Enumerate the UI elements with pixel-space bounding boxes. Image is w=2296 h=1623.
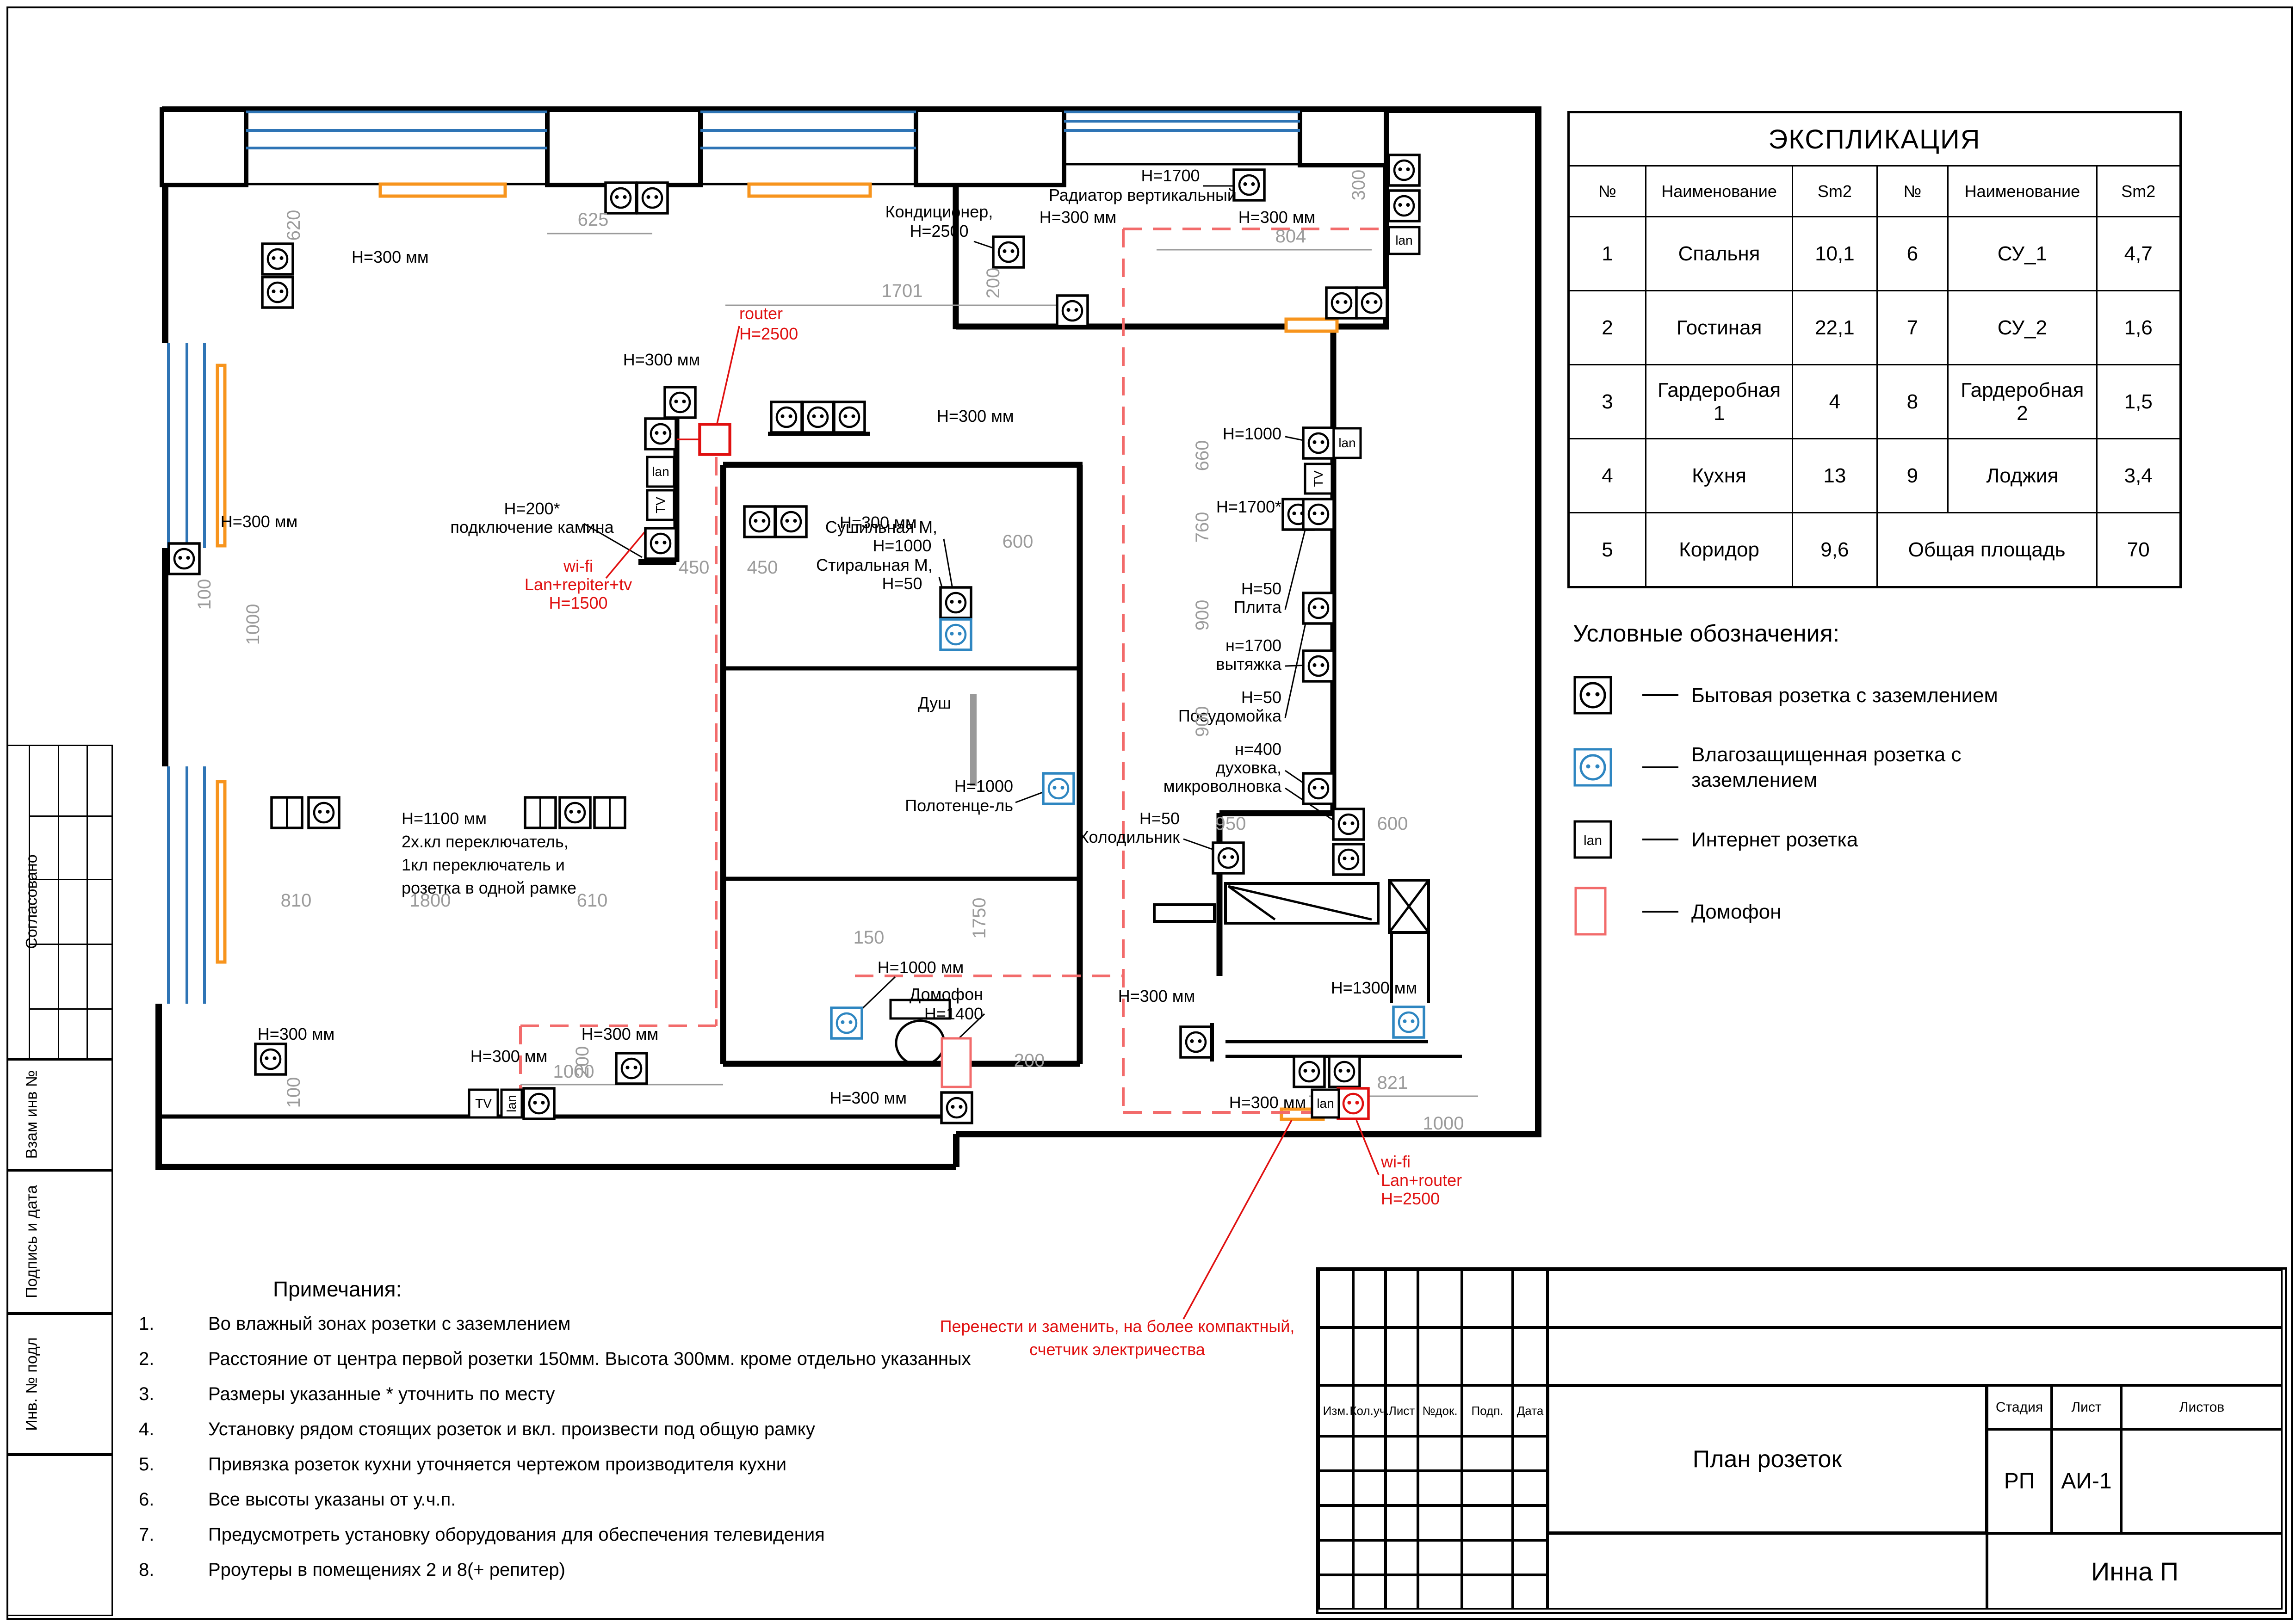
author: Инна П: [1987, 1533, 2283, 1610]
note-text: Рроутеры в помещениях 2 и 8(+ репитер): [208, 1560, 565, 1580]
dimension-label: 200: [983, 268, 1003, 299]
legend-dash: [1642, 839, 1678, 840]
power-socket: [1389, 191, 1419, 221]
note-number: 2.: [139, 1349, 208, 1370]
stamp-label: Взам инв №: [23, 1050, 41, 1179]
wall-pier: [162, 110, 246, 185]
dimension-label: 150: [854, 927, 885, 948]
note-item: 3.Размеры указанные * уточнить по месту: [139, 1384, 1342, 1405]
power-socket: [1057, 296, 1088, 326]
explication-cell: Гардеробная 2: [1948, 365, 2097, 439]
power-socket: [1294, 1056, 1324, 1087]
power-socket: [1333, 809, 1364, 839]
radiator-mark: [380, 184, 505, 196]
plan-label: Н=50: [882, 574, 922, 593]
title-block-cell: [1462, 1436, 1513, 1471]
router-box: [700, 425, 730, 454]
title-block-cell: [1318, 1327, 1353, 1385]
power-socket: [637, 183, 668, 213]
plan-label: H=300 мм: [258, 1024, 335, 1043]
plan-label: Н=1400: [924, 1004, 983, 1023]
legend-item: Влагозащищенная розетка с заземлением: [1573, 742, 2221, 793]
domofon-box: [942, 1038, 971, 1087]
power-socket: [645, 419, 676, 449]
explication-cell: 4: [1793, 365, 1877, 439]
plan-label: H=300 мм: [1238, 208, 1316, 227]
moisture-socket: [1393, 1007, 1424, 1037]
explication-cell: 1: [1569, 217, 1646, 291]
title-block-cell: [1353, 1436, 1386, 1471]
power-socket: [941, 587, 971, 618]
title-block-cell: [1547, 1270, 2283, 1327]
moisture-socket: [1043, 773, 1074, 804]
lan-socket: lan: [1334, 428, 1361, 458]
legend-label: Интернет розетка: [1691, 827, 1858, 852]
title-block-cell: [1462, 1270, 1513, 1327]
svg-text:lan: lan: [652, 464, 669, 479]
explication-cell: СУ_2: [1948, 291, 2097, 365]
explication-cell: 5: [1569, 513, 1646, 587]
title-block-cell: [1513, 1270, 1547, 1327]
legend-item: Бытовая розетка с заземлением: [1573, 675, 2221, 715]
note-text: Размеры указанные * уточнить по месту: [208, 1384, 555, 1405]
power-socket: [1213, 843, 1244, 873]
plan-label: 1кл переключатель и: [402, 855, 565, 874]
plan-label-red: H=2500: [1381, 1189, 1440, 1208]
dimension-label: 600: [1003, 531, 1034, 552]
title-block-cell: [1386, 1506, 1418, 1540]
title-block-cell: [1418, 1436, 1462, 1471]
explication-header: Наименование: [1948, 166, 2097, 217]
dimension-label: 200: [572, 1046, 593, 1077]
dimension-label: 950: [1215, 814, 1246, 834]
plan-label-red: H=2500: [739, 324, 798, 343]
stamp-cell: [6, 1059, 113, 1170]
lan-icon: lan: [1573, 820, 1613, 859]
lan-socket: lan: [501, 1090, 522, 1117]
radiator-mark: [217, 782, 225, 962]
notes-title: Примечания:: [273, 1277, 1342, 1302]
power-socket: [834, 402, 865, 432]
plan-label: Домофон: [910, 985, 983, 1004]
plan-label: Н=2500: [910, 222, 968, 241]
power-socket: [645, 528, 676, 559]
explication-cell: 7: [1877, 291, 1948, 365]
title-block-cell: [1353, 1575, 1386, 1610]
title-block-cell: [1462, 1327, 1513, 1385]
note-number: 1.: [139, 1314, 208, 1334]
explication-cell: 6: [1877, 217, 1948, 291]
title-block-cell: [1462, 1506, 1513, 1540]
dimension-label: 610: [577, 890, 608, 911]
title-block-cell: [1418, 1575, 1462, 1610]
power-socket: [776, 506, 806, 537]
plan-label: H=300 мм: [352, 247, 429, 266]
plan-label: Н=1700*: [1216, 497, 1281, 516]
legend-title: Условные обозначения:: [1573, 620, 2221, 648]
counter-tab: [1154, 905, 1214, 921]
explication-header: №: [1877, 166, 1948, 217]
moisture-socket: [831, 1008, 862, 1038]
tv-socket: TV: [1305, 464, 1332, 494]
power-socket: [744, 506, 775, 537]
socket-icon: [1573, 675, 1613, 715]
title-block-cell: [1386, 1540, 1418, 1575]
note-text: Привязка розеток кухни уточняется чертеж…: [208, 1454, 786, 1475]
note-item: 1.Во влажный зонах розетки с заземлением: [139, 1314, 1342, 1334]
legend-dash: [1642, 694, 1678, 696]
title-block-cell: [1386, 1327, 1418, 1385]
stamp-grid-line: [29, 1008, 113, 1010]
dimension-label: 900: [1192, 706, 1213, 737]
plan-label: H=300 мм: [623, 350, 700, 369]
plan-label: H=300 мм: [1118, 987, 1195, 1006]
wall-pier: [916, 110, 1064, 185]
note-item: 8.Рроутеры в помещениях 2 и 8(+ репитер): [139, 1560, 1342, 1580]
dimension-label: 300: [1349, 170, 1369, 201]
power-socket: [1303, 773, 1334, 804]
legend-dash: [1642, 766, 1678, 768]
title-block-header: Дата: [1513, 1385, 1547, 1436]
power-socket: [1389, 155, 1419, 185]
power-socket: [1326, 288, 1357, 318]
power-socket: [941, 1092, 972, 1123]
power-socket: [606, 183, 636, 213]
note-item: 5.Привязка розеток кухни уточняется черт…: [139, 1454, 1342, 1475]
explication-cell: Лоджия: [1948, 439, 2097, 513]
explication-header: Sm2: [1793, 166, 1877, 217]
dimension-label: 660: [1192, 440, 1213, 471]
plan-label: Н=50: [1241, 579, 1281, 598]
title-block-cell: [1386, 1575, 1418, 1610]
note-number: 5.: [139, 1454, 208, 1475]
leader-line: [1015, 791, 1046, 802]
stamp-grid-line: [58, 745, 59, 1059]
svg-text:lan: lan: [1317, 1096, 1334, 1111]
title-block-cell: [1513, 1436, 1547, 1471]
power-socket: [1303, 428, 1334, 458]
power-socket: [1303, 651, 1334, 681]
power-socket: [255, 1044, 286, 1074]
title-block-header: Подп.: [1462, 1385, 1513, 1436]
explication-cell: Коридор: [1646, 513, 1792, 587]
explication-cell: 9: [1877, 439, 1948, 513]
plan-label: Стиральная М,: [816, 555, 933, 574]
explication-cell: 13: [1793, 439, 1877, 513]
sheets-value: [2121, 1429, 2283, 1533]
stamp-grid-line: [29, 944, 113, 945]
title-block-cell: [1386, 1270, 1418, 1327]
stamp-cell: [6, 1314, 113, 1455]
org-cell: [1547, 1533, 1987, 1610]
power-socket: [993, 237, 1024, 267]
stamp-label: Инв. № подл: [23, 1319, 41, 1449]
title-block-cell: [1462, 1540, 1513, 1575]
title-block-cell: [1462, 1575, 1513, 1610]
power-socket: [169, 543, 199, 574]
plan-label: Н=1000: [954, 777, 1013, 796]
plan-label: н=400: [1235, 740, 1281, 759]
power-socket: [524, 1088, 554, 1119]
router-socket: [1338, 1088, 1368, 1119]
plan-label: Н=1000: [873, 536, 931, 555]
title-block-cell: [1386, 1436, 1418, 1471]
title-block-cell: [1318, 1436, 1353, 1471]
title-block-cell: [1418, 1327, 1462, 1385]
plan-label: Душ: [918, 693, 951, 712]
plan-label: Н=1000 мм: [878, 958, 964, 977]
note-number: 6.: [139, 1489, 208, 1510]
plan-label: Полотенце-ль: [905, 796, 1013, 815]
lan-socket: lan: [1389, 227, 1419, 254]
dimension-label: 620: [284, 210, 304, 241]
explication-title: ЭКСПЛИКАЦИЯ: [1569, 112, 2181, 166]
stage-header: Стадия: [1987, 1385, 2052, 1429]
plan-label: Сушильная М,: [825, 518, 937, 537]
plan-label-red: wi-fi: [1380, 1152, 1411, 1171]
note-text: Расстояние от центра первой розетки 150м…: [208, 1349, 971, 1370]
plan-label-red: Lan+repiter+tv: [525, 575, 632, 594]
plan-label: H=300 мм: [470, 1047, 548, 1066]
note-item: 6.Все высоты указаны от у.ч.п.: [139, 1489, 1342, 1510]
power-socket: [1303, 499, 1334, 530]
note-text: Установку рядом стоящих розеток и вкл. п…: [208, 1419, 815, 1440]
power-socket: [771, 402, 802, 432]
plan-label-red: wi-fi: [563, 556, 593, 575]
plan-label: Кондиционер,: [885, 202, 993, 221]
title-block-cell: [1462, 1471, 1513, 1506]
title-block-cell: [1547, 1327, 2283, 1385]
explication-cell: Кухня: [1646, 439, 1792, 513]
explication-cell: Спальня: [1646, 217, 1792, 291]
power-socket: [262, 244, 293, 274]
dimension-label: 1701: [882, 281, 923, 301]
power-socket: [1181, 1027, 1211, 1057]
notes: Примечания: 1.Во влажный зонах розетки с…: [139, 1277, 1342, 1595]
note-item: 7.Предусмотреть установку оборудования д…: [139, 1524, 1342, 1545]
title-block-cell: [1353, 1506, 1386, 1540]
title-block-header: Кол.уч.: [1353, 1385, 1386, 1436]
power-socket: [803, 402, 833, 432]
svg-text:lan: lan: [1395, 233, 1412, 247]
explication-cell: СУ_1: [1948, 217, 2097, 291]
explication-cell: 1,5: [2097, 365, 2180, 439]
plan-label: H=300 мм: [937, 407, 1014, 426]
explication-cell: Общая площадь: [1877, 513, 2097, 587]
dimension-label: 900: [1192, 600, 1213, 631]
legend-item: lanИнтернет розетка: [1573, 820, 2221, 859]
dimension-label: 760: [1192, 512, 1213, 543]
title-block-cell: [1318, 1575, 1353, 1610]
note-item: 4.Установку рядом стоящих розеток и вкл.…: [139, 1419, 1342, 1440]
power-socket: [560, 797, 590, 828]
tv-socket: TV: [469, 1090, 498, 1117]
title-block-cell: [1353, 1327, 1386, 1385]
power-socket: [1329, 1056, 1360, 1087]
title-block-cell: [1353, 1270, 1386, 1327]
power-socket: [1333, 844, 1364, 875]
plan-label: Н=50: [1241, 688, 1281, 707]
legend-label: Влагозащищенная розетка с заземлением: [1691, 742, 2043, 793]
plan-label: Радиатор вертикальный: [1049, 185, 1237, 204]
explication-cell: 2: [1569, 291, 1646, 365]
power-socket: [616, 1053, 647, 1084]
title-block-cell: [1418, 1540, 1462, 1575]
plan-label: Н=1000: [1223, 424, 1281, 443]
plan-label: 2х.кл переключатель,: [402, 832, 569, 851]
plan-label: вытяжка: [1216, 654, 1282, 673]
title-block-header: Лист: [1386, 1385, 1418, 1436]
explication-cell: 3: [1569, 365, 1646, 439]
title-block-cell: [1513, 1327, 1547, 1385]
title-block-cell: [1318, 1471, 1353, 1506]
svg-text:TV: TV: [653, 497, 668, 513]
note-number: 7.: [139, 1524, 208, 1545]
title-block-cell: [1513, 1540, 1547, 1575]
plan-label: H=300 мм: [1229, 1093, 1306, 1112]
plan-label-red: Н=1500: [549, 593, 607, 612]
domofon-icon: [1573, 886, 1613, 937]
power-socket: [262, 277, 293, 308]
note-text: Все высоты указаны от у.ч.п.: [208, 1489, 456, 1510]
plan-label: Плита: [1234, 598, 1282, 617]
explication-header: №: [1569, 166, 1646, 217]
stamp-label: Подпись и дата: [23, 1177, 41, 1307]
title-block: План розеток Стадия Лист Листов РП АИ-1 …: [1316, 1267, 2287, 1614]
note-number: 8.: [139, 1560, 208, 1580]
explication-cell: Гостиная: [1646, 291, 1792, 365]
dimension-label: 600: [1377, 814, 1408, 834]
explication-cell: 4: [1569, 439, 1646, 513]
sheet-header: Лист: [2052, 1385, 2121, 1429]
plan-label: подключение камина: [450, 518, 614, 537]
svg-text:lan: lan: [504, 1095, 519, 1112]
dimension-label: 1750: [969, 898, 990, 939]
dimension-label: 821: [1377, 1073, 1408, 1093]
svg-text:lan: lan: [1584, 833, 1602, 848]
legend: Условные обозначения: Бытовая розетка с …: [1573, 620, 2221, 964]
dimension-label: 1800: [410, 890, 451, 911]
dimension-label: 1000: [243, 604, 263, 645]
lan-socket: lan: [647, 457, 674, 487]
title-block-cell: [1418, 1471, 1462, 1506]
wall-pier: [547, 110, 700, 185]
plan-label: Н=200*: [504, 499, 560, 518]
title-block-cell: [1318, 1540, 1353, 1575]
note-text: Предусмотреть установку оборудования для…: [208, 1524, 825, 1545]
plan-label: Холодильник: [1078, 827, 1180, 846]
dimension-label: 200: [1014, 1050, 1045, 1071]
explication-cell: Гардеробная 1: [1646, 365, 1792, 439]
power-socket: [1303, 593, 1334, 623]
title-block-cell: [1513, 1575, 1547, 1610]
legend-item: Домофон: [1573, 886, 2221, 937]
stamp-grid-line: [87, 745, 88, 1059]
explication-cell: 22,1: [1793, 291, 1877, 365]
plan-label: Н=1100 мм: [402, 809, 487, 828]
moisture-socket-icon: [1573, 747, 1613, 787]
radiator-mark: [1286, 319, 1337, 331]
power-socket: [665, 387, 695, 418]
dimension-label: 625: [578, 210, 609, 230]
note-item: 2.Расстояние от центра первой розетки 15…: [139, 1349, 1342, 1370]
dimension-label: 100: [194, 579, 215, 610]
stamp-grid-line: [29, 815, 113, 817]
wall-pier: [1300, 110, 1386, 165]
tv-socket: TV: [647, 490, 674, 520]
title-block-cell: [1318, 1270, 1353, 1327]
sheet-code: АИ-1: [2052, 1429, 2121, 1533]
explication-cell: 1,6: [2097, 291, 2180, 365]
title-block-cell: [1513, 1471, 1547, 1506]
toilet-bowl: [896, 1021, 944, 1065]
explication-header: Наименование: [1646, 166, 1792, 217]
power-socket: [1356, 288, 1387, 318]
dimension-label: 450: [679, 557, 710, 578]
title-block-header: №док.: [1418, 1385, 1462, 1436]
power-socket: [1234, 170, 1264, 200]
plan-label: H=1300 мм: [1331, 978, 1417, 997]
dimension-label: 1000: [1423, 1113, 1464, 1134]
plan-label: H=300 мм: [582, 1024, 659, 1043]
title-block-cell: [1353, 1540, 1386, 1575]
stage-value: РП: [1987, 1429, 2052, 1533]
moisture-socket: [941, 619, 971, 650]
plan-label: духовка,: [1216, 758, 1281, 777]
explication-cell: 9,6: [1793, 513, 1877, 587]
explication-cell: 4,7: [2097, 217, 2180, 291]
svg-text:TV: TV: [1311, 470, 1325, 487]
explication-table: ЭКСПЛИКАЦИЯ №НаименованиеSm2№Наименовани…: [1567, 111, 2182, 588]
plan-label-red: Lan+router: [1381, 1171, 1462, 1190]
note-text: Во влажный зонах розетки с заземлением: [208, 1314, 570, 1334]
plan-label-red: router: [739, 304, 783, 323]
explication-cell: 3,4: [2097, 439, 2180, 513]
dimension-label: 450: [747, 557, 778, 578]
title-block-cell: [1353, 1471, 1386, 1506]
note-number: 4.: [139, 1419, 208, 1440]
leader-line-red: [1356, 1120, 1379, 1175]
explication-header: Sm2: [2097, 166, 2180, 217]
stamp-cell: [6, 1455, 113, 1616]
plan-label: Н=1700: [1141, 166, 1200, 185]
explication-cell: 8: [1877, 365, 1948, 439]
lan-socket: lan: [1312, 1090, 1339, 1117]
svg-text:TV: TV: [475, 1096, 492, 1111]
plan-label: н=1700: [1225, 636, 1281, 655]
plan-label: H=300 мм: [1040, 208, 1117, 227]
stamp-cell: [6, 1170, 113, 1314]
leader-line-red: [717, 326, 739, 424]
plan-label: H=300 мм: [829, 1088, 907, 1107]
dimension-label: 100: [284, 1077, 304, 1108]
note-number: 3.: [139, 1384, 208, 1405]
stamp-label: Согласовано: [23, 763, 41, 1041]
power-socket: [309, 797, 339, 828]
title-block-header: Изм.: [1318, 1385, 1353, 1436]
plan-label: микроволновка: [1163, 777, 1282, 796]
title-block-cell: [1318, 1506, 1353, 1540]
legend-label: Домофон: [1691, 899, 1781, 925]
plan-label: Н=50: [1139, 809, 1180, 828]
doc-title: План розеток: [1547, 1385, 1987, 1533]
explication-cell: 10,1: [1793, 217, 1877, 291]
stamp-grid-line: [29, 745, 30, 1059]
title-block-cell: [1386, 1471, 1418, 1506]
stamp-grid-line: [29, 879, 113, 880]
drawing-sheet: lanTVlanlanTVTVlanlanH=300 ммКондиционер…: [0, 0, 2296, 1623]
title-block-cell: [1418, 1506, 1462, 1540]
